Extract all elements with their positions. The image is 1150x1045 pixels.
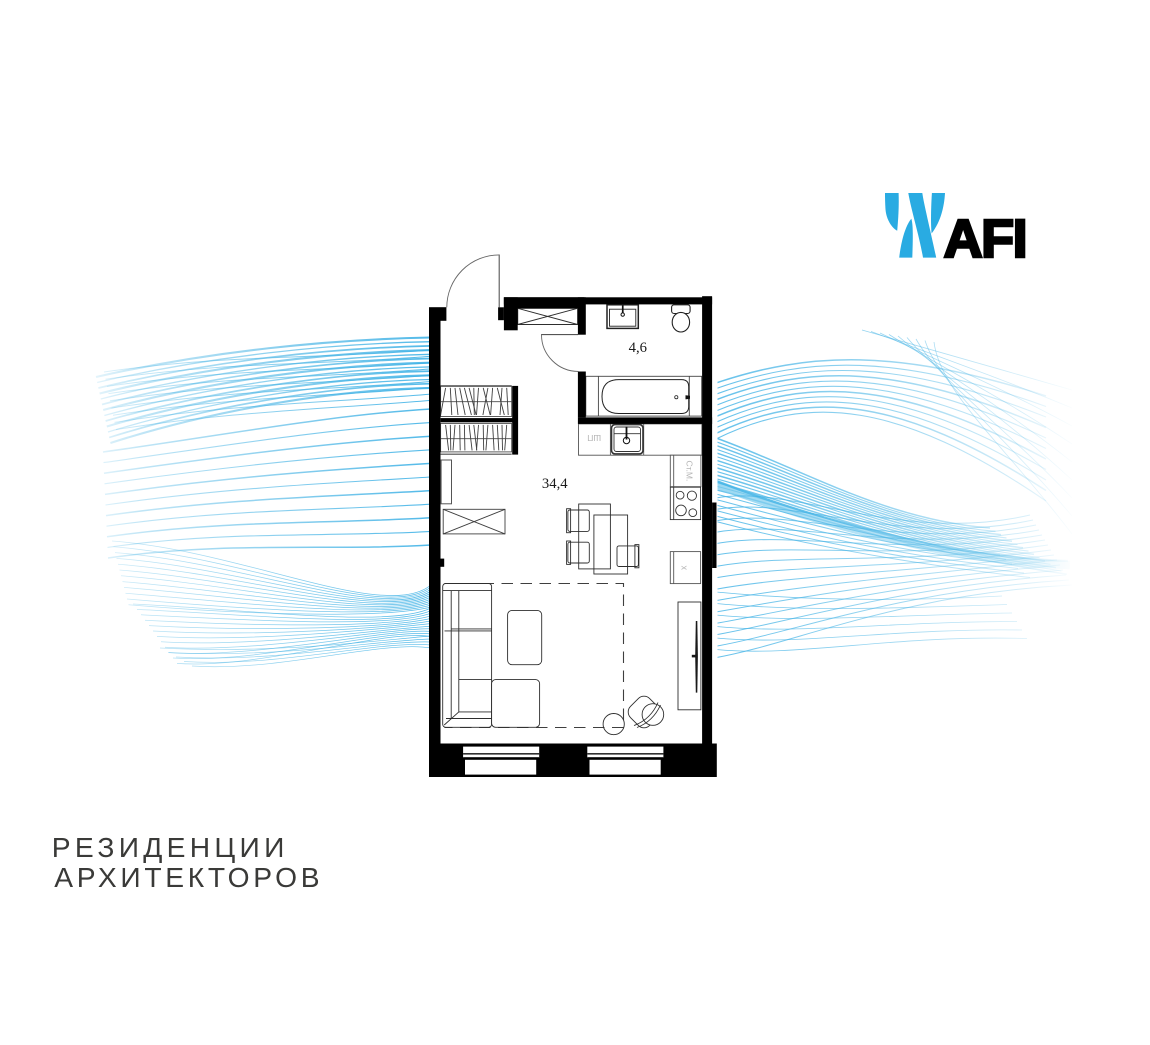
svg-text:ШП: ШП (587, 433, 601, 443)
svg-text:AFI: AFI (944, 209, 1027, 269)
svg-text:34,4: 34,4 (542, 476, 568, 492)
svg-text:РЕЗИДЕНЦИИ: РЕЗИДЕНЦИИ (52, 831, 289, 863)
svg-text:АРХИТЕКТОРОВ: АРХИТЕКТОРОВ (54, 861, 323, 893)
svg-text:x: x (679, 565, 689, 570)
svg-text:Ст.М.: Ст.М. (685, 460, 695, 481)
svg-text:4,6: 4,6 (629, 340, 647, 356)
